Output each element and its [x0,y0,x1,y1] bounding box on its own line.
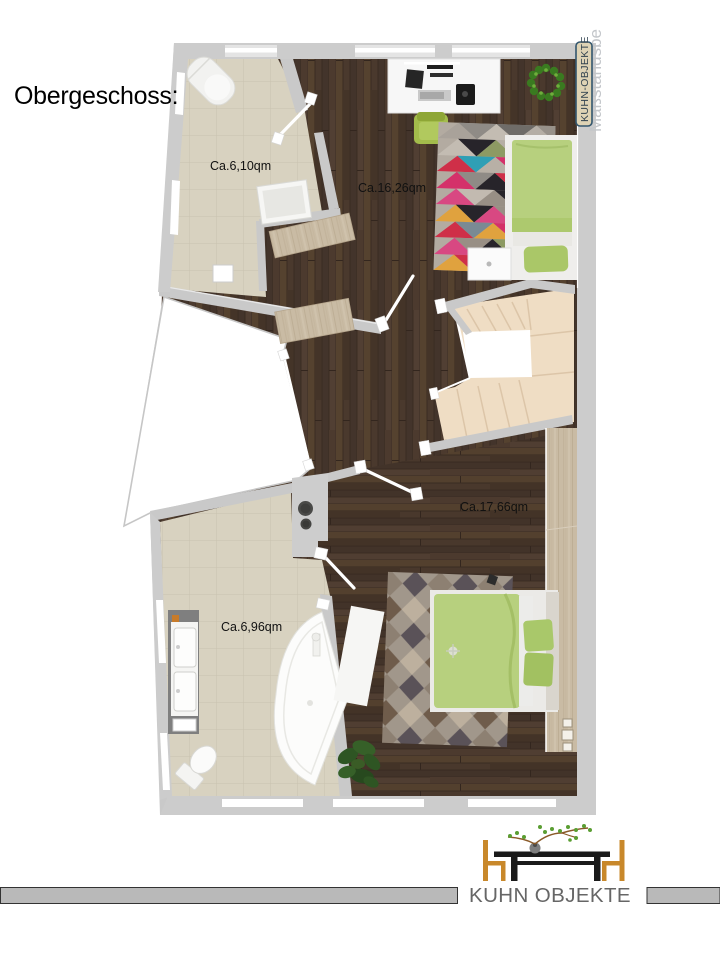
svg-text:Ca.6,96qm: Ca.6,96qm [221,620,282,634]
svg-text:KUHN OBJEKTE: KUHN OBJEKTE [469,884,631,907]
svg-text:Ca.6,10qm: Ca.6,10qm [210,159,271,173]
svg-text:Ca.17,66qm: Ca.17,66qm [460,500,528,514]
svg-text:KUHN-OBJEKTE: KUHN-OBJEKTE [579,36,591,122]
svg-text:Obergeschoss:: Obergeschoss: [14,82,178,110]
svg-text:Ca.16,26qm: Ca.16,26qm [358,181,426,195]
